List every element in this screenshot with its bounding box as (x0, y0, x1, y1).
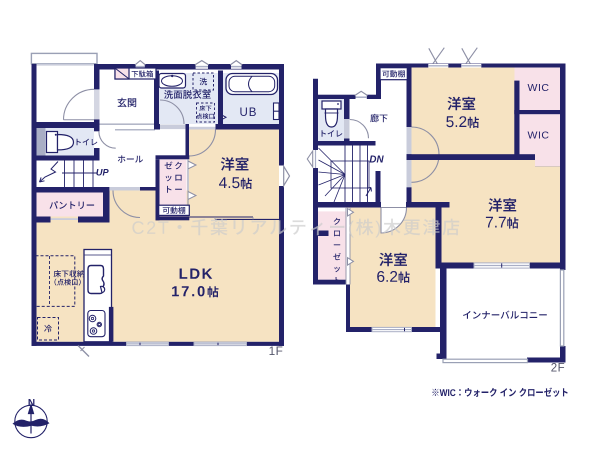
svg-text:WIC: WIC (528, 82, 550, 94)
svg-text:1F: 1F (269, 344, 284, 358)
svg-text:UP: UP (96, 167, 110, 177)
svg-text:WIC: WIC (528, 130, 550, 142)
svg-text:N: N (28, 398, 35, 409)
svg-text:DN: DN (369, 155, 384, 166)
svg-text:2F: 2F (551, 362, 565, 374)
svg-text:UB: UB (240, 107, 258, 119)
